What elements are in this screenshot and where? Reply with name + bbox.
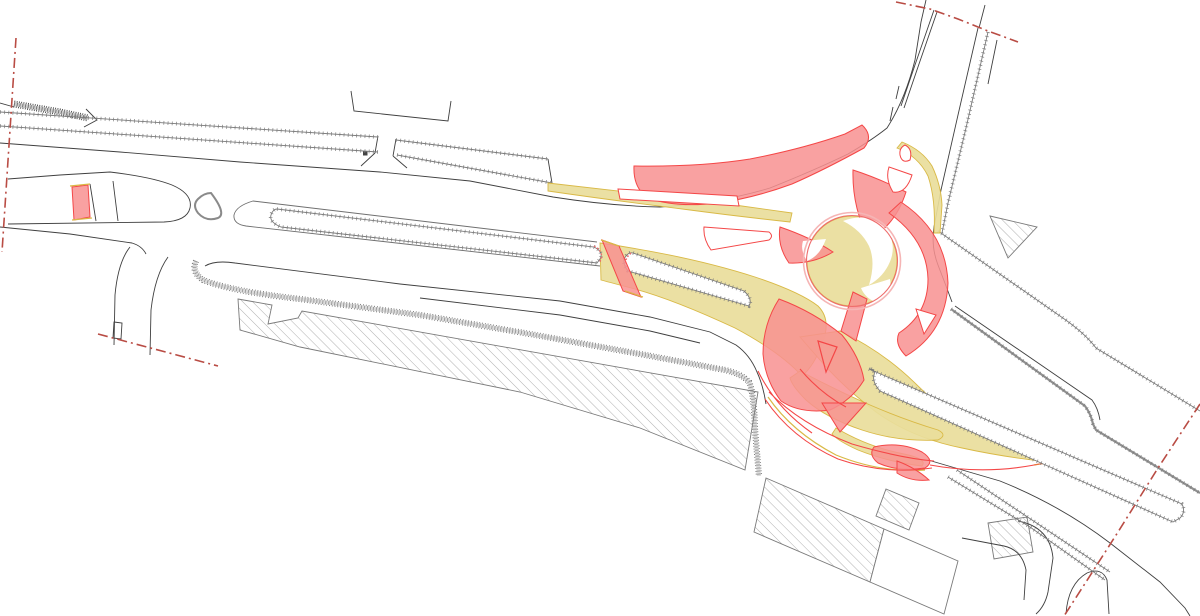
site-plan-canvas bbox=[0, 0, 1200, 616]
north-arm-east-footway bbox=[942, 32, 988, 233]
give-way-triangle-west-approach bbox=[704, 227, 772, 250]
median-island-southeast bbox=[869, 369, 1184, 522]
give-way-triangle-north-arm bbox=[888, 167, 912, 192]
building-bottom-west bbox=[754, 478, 884, 582]
site-plan-drawing bbox=[0, 0, 1200, 616]
triangle-island-west bbox=[195, 193, 221, 219]
median-island-west bbox=[271, 209, 601, 263]
southeast-arm-southwest-footway bbox=[948, 470, 1110, 580]
building-bottom-east-outline bbox=[870, 529, 958, 614]
building-triangle-northeast bbox=[990, 216, 1037, 258]
building-bottom-annex bbox=[876, 489, 919, 530]
kerb-tick-lines bbox=[0, 32, 1200, 580]
footway-north-bottom-edge bbox=[0, 126, 552, 183]
footway-north-top-edge bbox=[0, 112, 548, 159]
pedestrian-crossing-west bbox=[72, 185, 90, 220]
traffic-islands bbox=[195, 193, 1184, 522]
